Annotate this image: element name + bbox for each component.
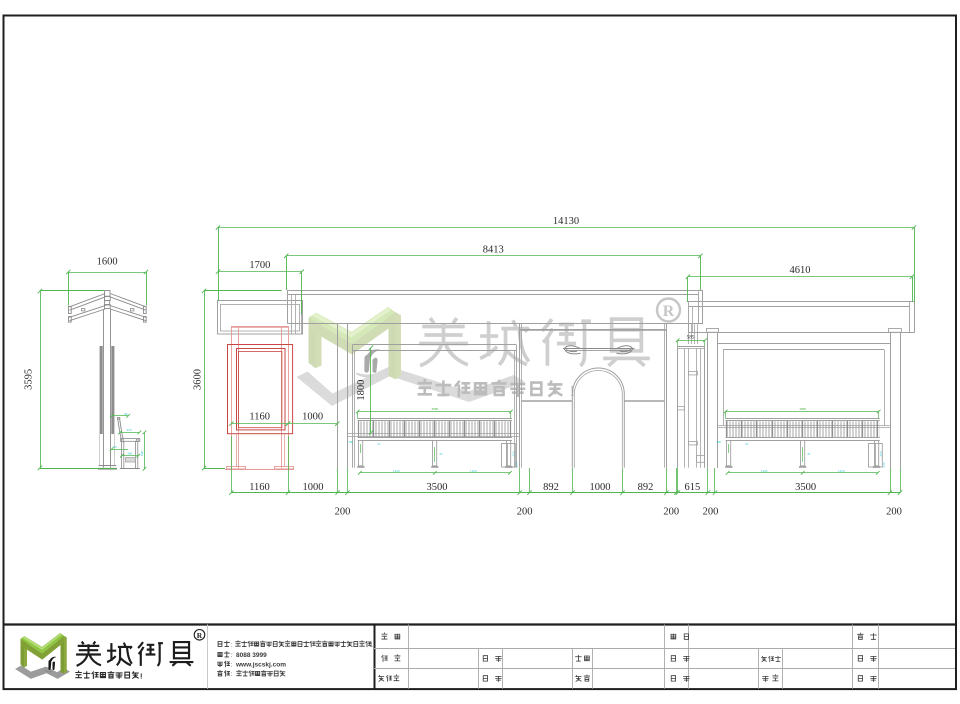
svg-text:3090: 3090 [431,407,438,411]
svg-text:892: 892 [638,482,654,493]
svg-text:1160: 1160 [249,482,270,493]
svg-text:1700: 1700 [249,260,270,271]
svg-text:615: 615 [685,482,701,493]
svg-text:320: 320 [514,462,518,467]
svg-text:8413: 8413 [483,244,504,255]
svg-text:14130: 14130 [553,216,579,227]
svg-text:R: R [663,303,675,320]
svg-text:300: 300 [716,440,721,444]
svg-text:1000: 1000 [302,412,323,423]
svg-text:1450: 1450 [393,469,400,473]
svg-text:200: 200 [663,507,679,518]
svg-text:25: 25 [377,442,381,446]
svg-text:80: 80 [113,445,117,449]
svg-text:300: 300 [127,452,133,456]
svg-text:300: 300 [348,440,353,444]
svg-text:4610: 4610 [789,265,810,276]
svg-text:200: 200 [886,507,902,518]
svg-text:1450: 1450 [470,469,477,473]
svg-text:3595: 3595 [24,369,35,390]
svg-text:R: R [197,631,203,640]
svg-text:3600: 3600 [193,369,204,390]
svg-text:45: 45 [807,452,811,456]
svg-text:3500: 3500 [795,482,816,493]
svg-text:1000: 1000 [303,482,324,493]
svg-text:!: ! [140,671,143,680]
svg-text:1450: 1450 [838,469,845,473]
svg-text:3090: 3090 [799,407,806,411]
svg-text:1450: 1450 [761,469,768,473]
svg-text:40: 40 [124,412,128,416]
svg-text:3500: 3500 [427,482,448,493]
svg-text:45: 45 [439,452,443,456]
svg-text:1000: 1000 [590,482,611,493]
svg-text:435: 435 [127,428,133,432]
svg-text:1800: 1800 [356,380,367,401]
svg-text:200: 200 [335,507,351,518]
svg-text:1160: 1160 [249,412,270,423]
svg-text:350: 350 [511,451,515,456]
svg-text:585: 585 [687,335,695,341]
svg-text:200: 200 [517,507,533,518]
svg-text:320: 320 [882,462,886,467]
svg-text:8088 3999: 8088 3999 [236,652,267,659]
svg-text:200: 200 [703,507,719,518]
svg-text:600: 600 [140,451,144,457]
svg-text:25: 25 [745,442,749,446]
svg-text:350: 350 [879,451,883,456]
svg-text:1600: 1600 [97,257,118,268]
svg-text:892: 892 [543,482,559,493]
svg-text:www.jscskj.com: www.jscskj.com [235,662,286,669]
